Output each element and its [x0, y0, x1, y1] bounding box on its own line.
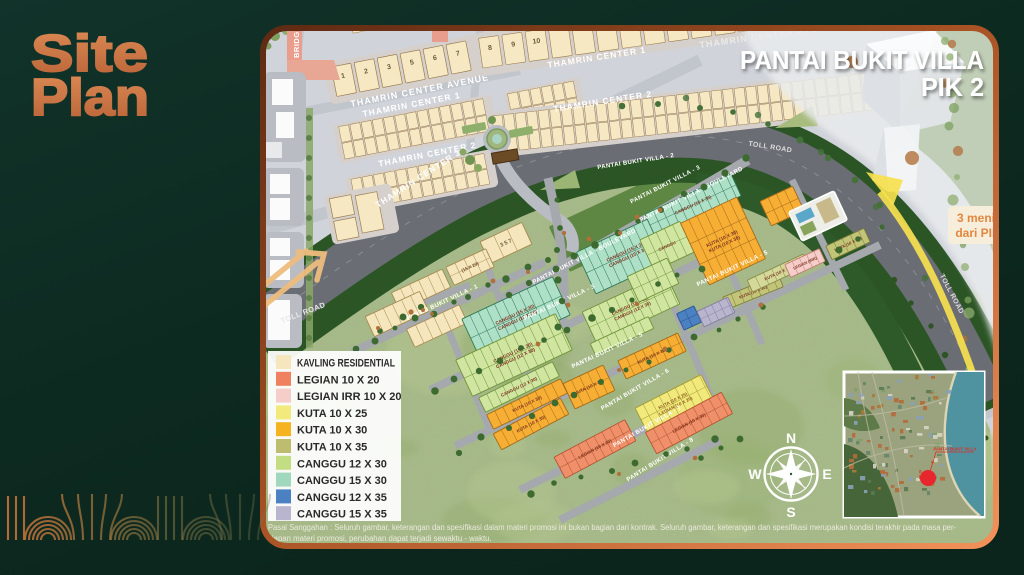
svg-text:W: W [748, 466, 762, 482]
svg-text:10: 10 [532, 38, 541, 46]
svg-text:KUTA 10 X 25: KUTA 10 X 25 [297, 408, 367, 420]
svg-text:LEGIAN IRR 10 X 20: LEGIAN IRR 10 X 20 [297, 391, 402, 403]
svg-text:CANGGU 12 X 30: CANGGU 12 X 30 [297, 458, 387, 470]
svg-text:KAVLING RESIDENTIAL: KAVLING RESIDENTIAL [297, 358, 395, 370]
svg-text:KUTA 10 X 30: KUTA 10 X 30 [297, 425, 367, 437]
svg-text:Plan: Plan [31, 69, 149, 127]
svg-text:CANGGU 15 X 30: CANGGU 15 X 30 [297, 475, 387, 487]
svg-text:N: N [786, 430, 796, 446]
svg-text:Pasal Sanggahan : Seluruh gamb: Pasal Sanggahan : Seluruh gambar, ketera… [268, 523, 956, 532]
svg-text:S: S [786, 504, 795, 520]
svg-text:PIK 2: PIK 2 [921, 72, 984, 102]
svg-text:CANGGU 15 X 35: CANGGU 15 X 35 [297, 509, 387, 521]
svg-text:PANTAI BUKIT VILLA: PANTAI BUKIT VILLA [933, 447, 976, 452]
svg-text:E: E [822, 466, 831, 482]
svg-text:LEGIAN 10 X 20: LEGIAN 10 X 20 [297, 374, 380, 386]
svg-text:CANGGU 12 X 35: CANGGU 12 X 35 [297, 492, 387, 504]
svg-text:KUTA 10 X 35: KUTA 10 X 35 [297, 442, 367, 454]
svg-text:siapan materi promosi, perubah: siapan materi promosi, perubahan dapat t… [268, 534, 492, 543]
svg-text:3 menit: 3 menit [957, 211, 999, 225]
svg-text:PANTAI BUKIT VILLA: PANTAI BUKIT VILLA [740, 45, 984, 75]
